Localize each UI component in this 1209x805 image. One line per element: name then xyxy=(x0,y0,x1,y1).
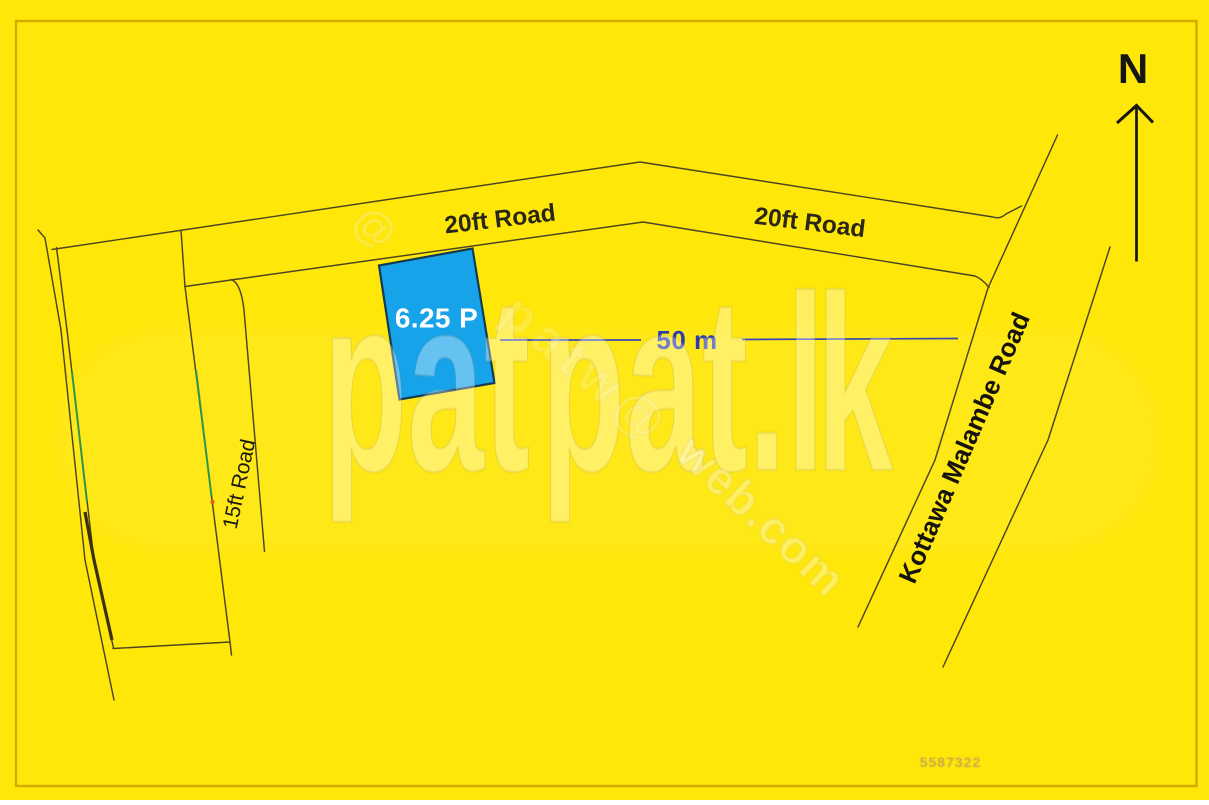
svg-text:5587322: 5587322 xyxy=(920,754,982,770)
svg-text:N: N xyxy=(1118,45,1148,92)
